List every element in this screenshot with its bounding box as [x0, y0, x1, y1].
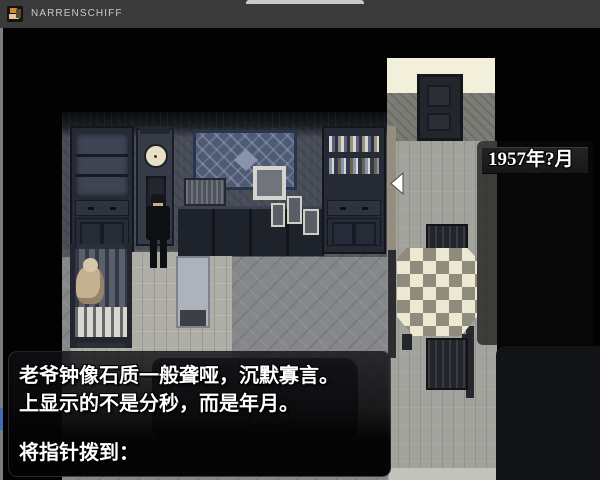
table-leg [402, 334, 412, 350]
corridor-baseboard [389, 468, 497, 480]
checkered-table [397, 248, 477, 336]
wall-jamb-shadow [388, 250, 396, 358]
player-character [144, 194, 172, 270]
selection-arrow-icon [390, 172, 404, 195]
doll [76, 266, 104, 304]
message-window: 老爷钟像石质一般聋哑，沉默寡言。 上显示的不是分秒，而是年月。 将指针拨到： [8, 351, 391, 477]
left-cabinet [70, 126, 134, 252]
app-icon [7, 6, 23, 22]
window-title: NARRENSCHIFF [31, 8, 123, 19]
choice-item-1957-q[interactable]: 1957年?月 [482, 147, 588, 174]
books-row [329, 136, 379, 152]
door [417, 74, 463, 141]
photo-frame [303, 209, 319, 235]
dialogue-line-2: 上显示的不是分秒，而是年月。 [19, 387, 299, 416]
photo-frame [287, 196, 302, 224]
nightstand [176, 256, 210, 328]
desktop-edge-blue [0, 408, 3, 430]
bottom-right-panel [496, 346, 600, 480]
titlebar[interactable]: NARRENSCHIFF — □ ✕ [0, 0, 600, 28]
bookshelf [322, 126, 386, 254]
picture-frame [253, 166, 286, 200]
books-row [329, 158, 379, 174]
game-window: NARRENSCHIFF — □ ✕ [0, 0, 600, 480]
date-choice-menu: 1952年5月 1953年12月 1954年3月 1955年10月 1956年1… [477, 141, 593, 345]
photo-frame [271, 203, 285, 227]
radio [184, 178, 226, 206]
game-viewport: 1952年5月 1953年12月 1954年3月 1955年10月 1956年1… [0, 28, 600, 480]
dialogue-prompt: 将指针拨到： [19, 436, 139, 465]
chair [426, 338, 468, 390]
background-window-edge [246, 0, 364, 4]
dialogue-line-1: 老爷钟像石质一般聋哑，沉默寡言。 [19, 359, 339, 388]
